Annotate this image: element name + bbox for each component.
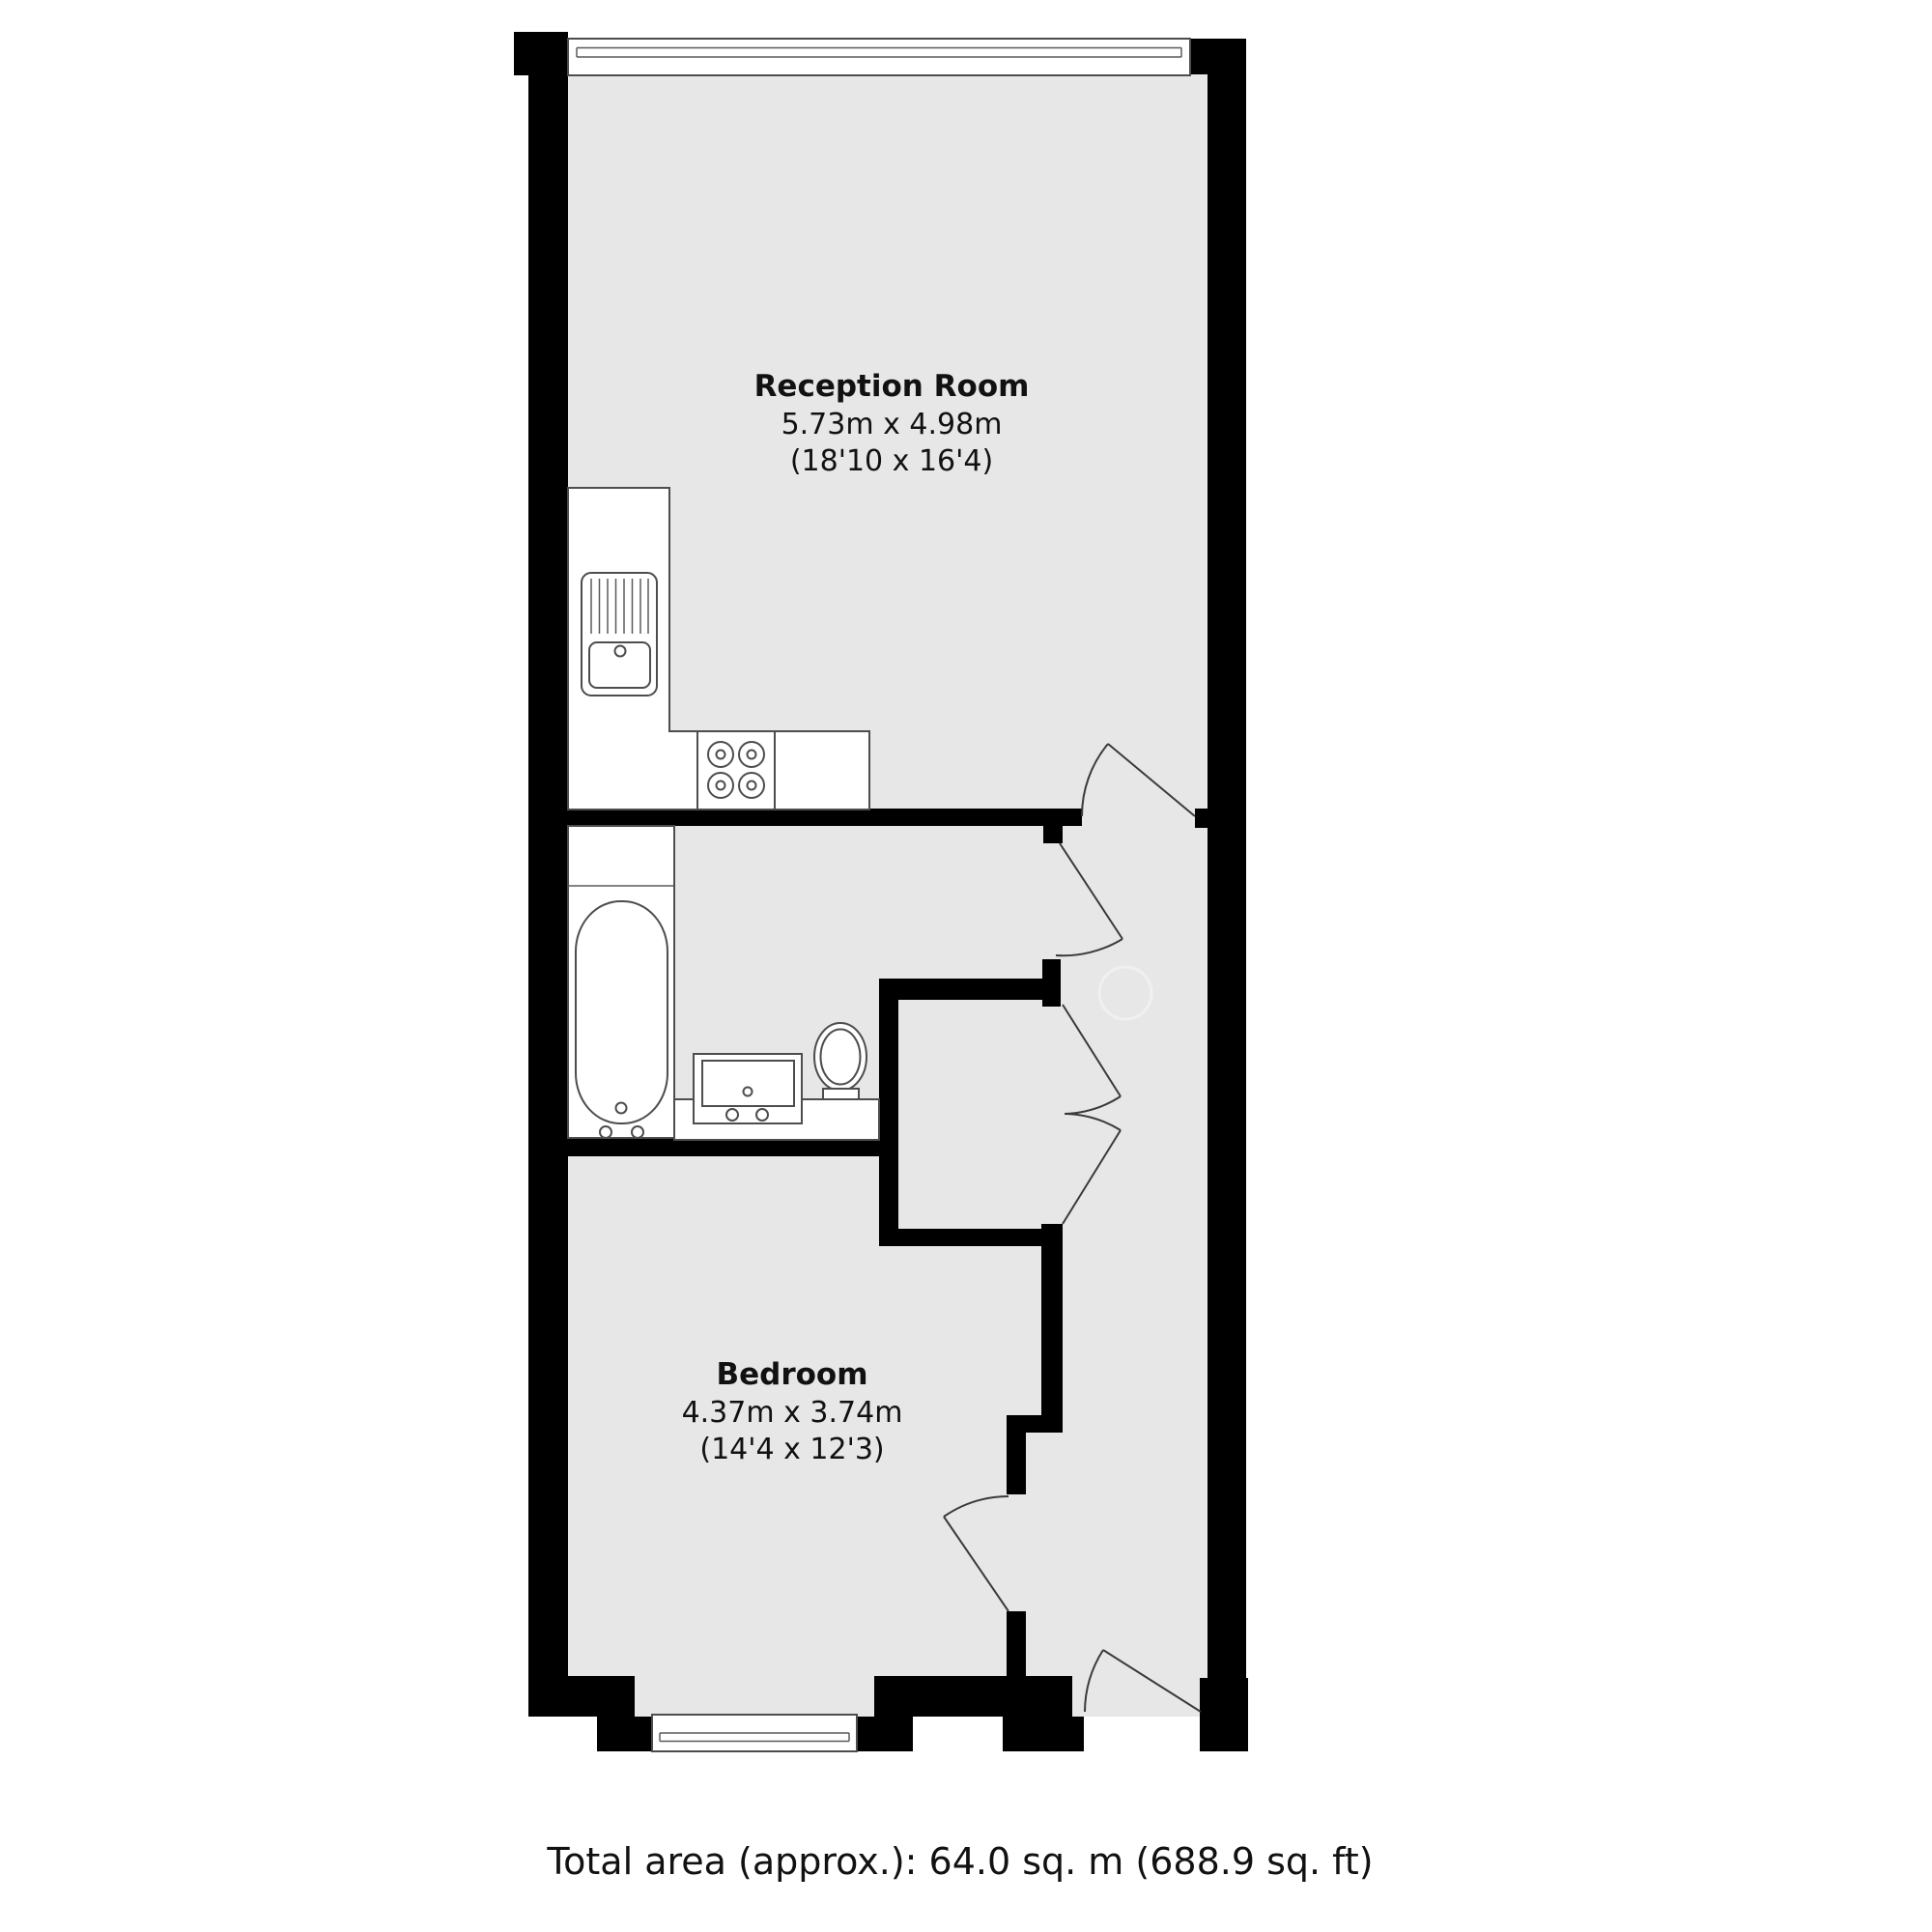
toilet-icon xyxy=(814,1023,867,1099)
floorplan-canvas: Reception Room 5.73m x 4.98m (18'10 x 16… xyxy=(0,0,1932,1932)
bedroom-name: Bedroom xyxy=(716,1357,867,1392)
total-area-caption: Total area (approx.): 64.0 sq. m (688.9 … xyxy=(546,1840,1373,1883)
vanity-basin-icon xyxy=(694,1054,802,1123)
reception-room-name: Reception Room xyxy=(754,369,1030,404)
reception-room-dim-imperial: (18'10 x 16'4) xyxy=(790,444,993,478)
reception-room-label: Reception Room 5.73m x 4.98m (18'10 x 16… xyxy=(754,369,1030,478)
kitchen-sink-icon xyxy=(582,573,657,696)
bedroom-window-icon xyxy=(652,1715,857,1751)
reception-window-icon xyxy=(568,39,1190,75)
reception-room-dim-metric: 5.73m x 4.98m xyxy=(781,408,1003,441)
hob-icon xyxy=(697,731,775,810)
bathtub-icon xyxy=(576,901,668,1138)
bedroom-dim-imperial: (14'4 x 12'3) xyxy=(699,1433,884,1466)
floorplan-page: Reception Room 5.73m x 4.98m (18'10 x 16… xyxy=(0,0,1932,1932)
bedroom-dim-metric: 4.37m x 3.74m xyxy=(682,1396,903,1430)
